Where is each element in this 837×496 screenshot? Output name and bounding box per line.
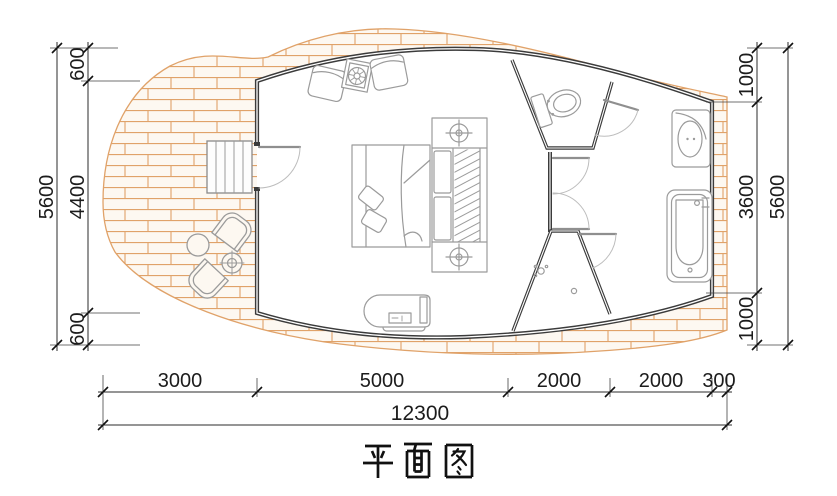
floor-plan-drawing: 5600 600 4400 600 5600 1000 3600 1000 30… [0, 0, 837, 496]
coffee-table-icon [342, 59, 373, 92]
double-bed-icon [352, 145, 430, 247]
dim-right-segment-2: 1000 [736, 297, 758, 342]
dim-bottom-segment-2: 2000 [537, 370, 582, 392]
dim-left-segment-1: 4400 [67, 175, 89, 220]
dim-right-total: 5600 [767, 175, 789, 220]
dim-right-segment-1: 3600 [736, 175, 758, 220]
washbasin-icon [672, 110, 710, 167]
entry-stairs-icon [207, 141, 252, 193]
tv-cabinet-icon [364, 295, 430, 331]
dim-bottom-total: 12300 [391, 402, 449, 425]
dim-left-segment-0: 600 [67, 47, 89, 80]
dim-bottom-segment-0: 3000 [158, 370, 203, 392]
dim-left-segment-2: 600 [67, 312, 89, 345]
wardrobe-icon [432, 118, 487, 272]
outdoor-table-icon [187, 234, 209, 256]
armchair-icon [369, 54, 408, 91]
dim-bottom-segment-1: 5000 [360, 370, 405, 392]
dim-bottom-segment-4: 300 [702, 370, 735, 392]
dim-left-total: 5600 [36, 175, 58, 220]
door-jamb-top [254, 142, 260, 146]
bathtub-icon [667, 190, 712, 282]
armchair-icon [307, 65, 347, 103]
floor-plan-page: 5600 600 4400 600 5600 1000 3600 1000 30… [0, 0, 837, 496]
dim-bottom-segment-3: 2000 [639, 370, 684, 392]
dim-right-segment-0: 1000 [736, 53, 758, 98]
